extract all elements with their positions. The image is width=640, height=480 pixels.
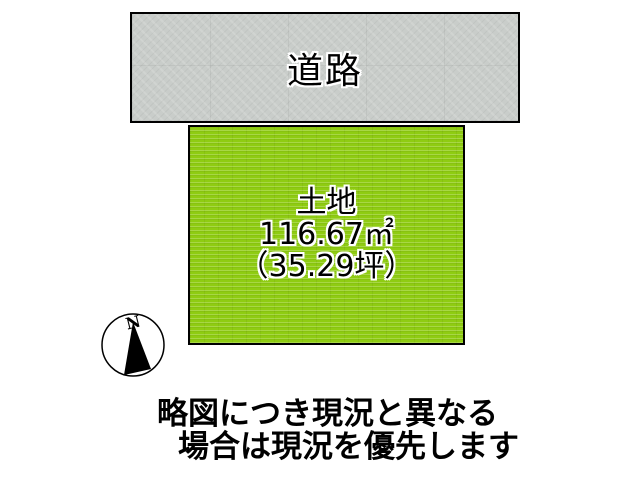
road-area: 道路 [130, 12, 520, 123]
disclaimer-line2: 場合は現況を優先します [157, 431, 519, 464]
land-name-label: 土地 [239, 187, 415, 219]
land-info: 土地 116.67㎡ （35.29坪） [239, 187, 415, 283]
land-parcel: 土地 116.67㎡ （35.29坪） [188, 125, 465, 345]
disclaimer-note: 略図につき現況と異なる 場合は現況を優先します [157, 398, 519, 464]
disclaimer-line1: 略図につき現況と異なる [157, 398, 519, 431]
compass-north-icon: N [98, 309, 168, 379]
land-area-sqm: 116.67㎡ [239, 219, 415, 251]
road-label: 道路 [287, 42, 363, 94]
land-area-tsubo: （35.29坪） [239, 251, 415, 283]
land-plot-diagram: 道路 土地 116.67㎡ （35.29坪） N 略図につき現況と異なる 場合は… [0, 0, 640, 480]
